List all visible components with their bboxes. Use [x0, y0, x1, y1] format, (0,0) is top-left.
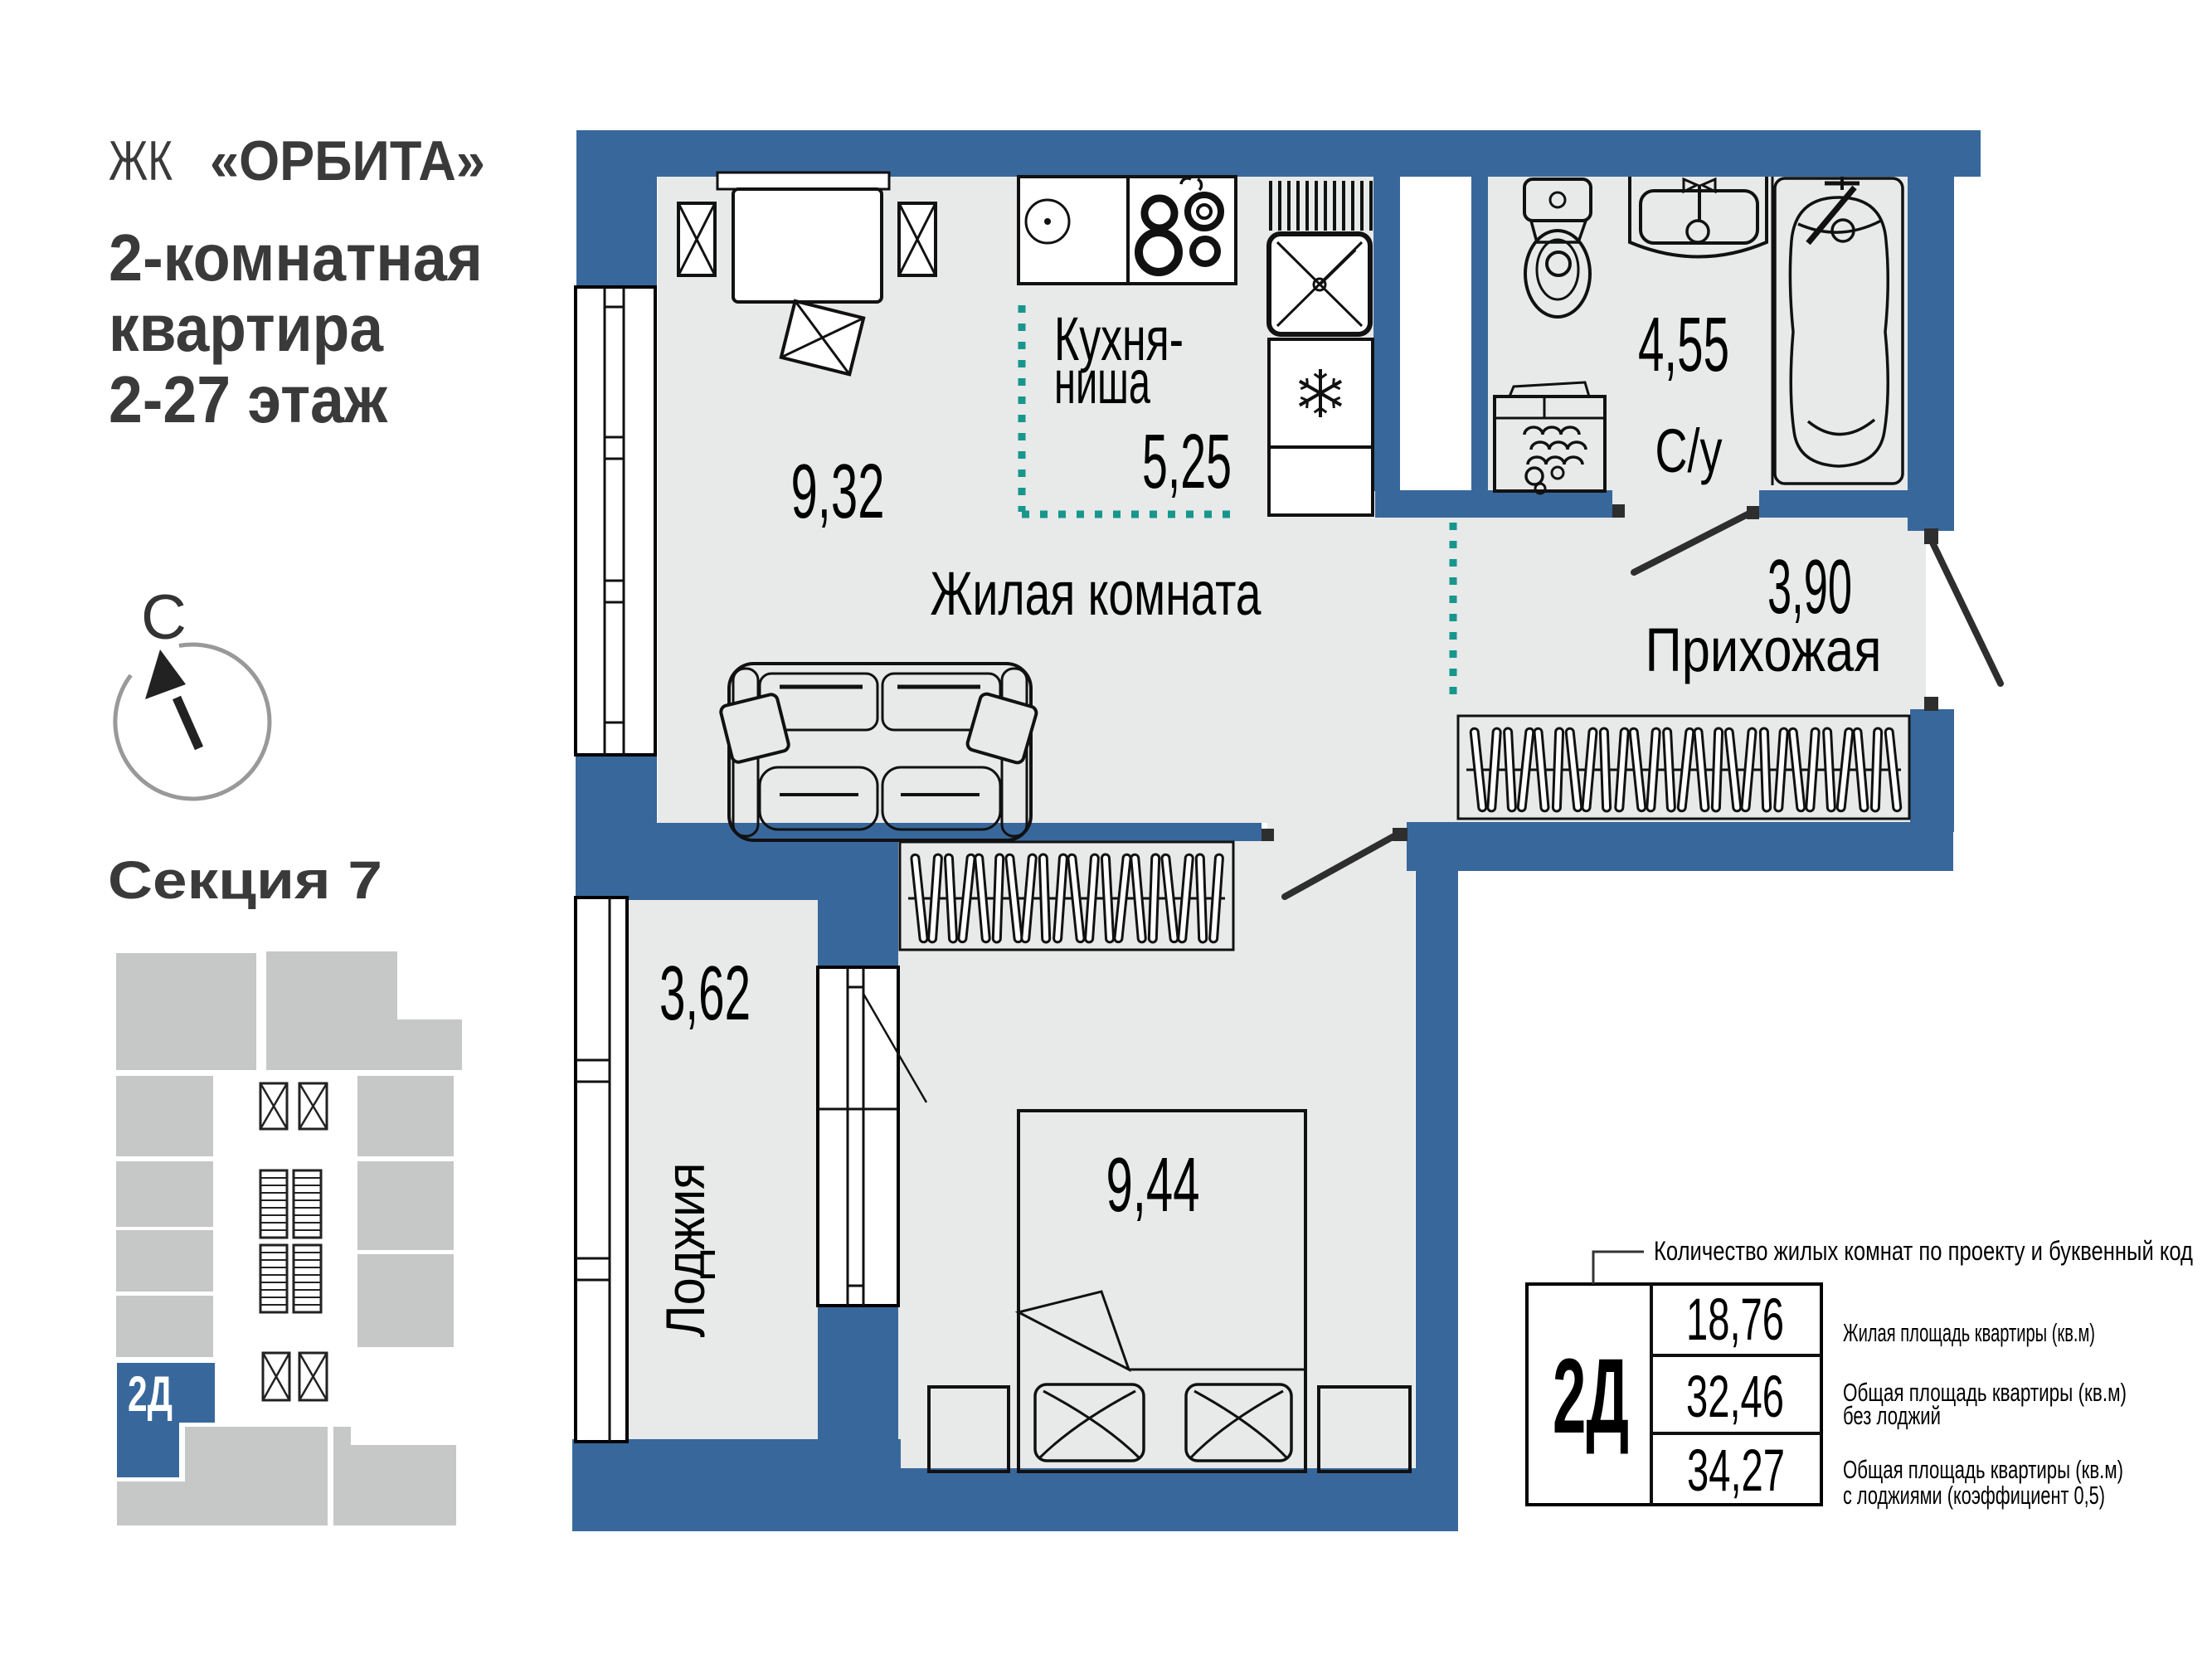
- svg-text:Жилая комната: Жилая комната: [931, 559, 1262, 628]
- svg-text:34,27: 34,27: [1687, 1438, 1785, 1504]
- svg-text:Лоджия: Лоджия: [654, 1163, 716, 1338]
- svg-text:2-27 этаж: 2-27 этаж: [109, 362, 388, 436]
- svg-text:ниша: ниша: [1054, 348, 1151, 416]
- svg-text:9,44: 9,44: [1106, 1141, 1200, 1228]
- svg-text:Общая площадь квартиры (кв.м): Общая площадь квартиры (кв.м): [1843, 1455, 2123, 1484]
- svg-text:С: С: [141, 582, 187, 653]
- svg-text:2Д: 2Д: [128, 1366, 173, 1422]
- svg-text:с лоджиями (коэффициент 0,5): с лоджиями (коэффициент 0,5): [1843, 1481, 2105, 1510]
- svg-text:Количество жилых комнат по про: Количество жилых комнат по проекту и бук…: [1654, 1236, 2193, 1266]
- svg-text:без лоджий: без лоджий: [1843, 1401, 1941, 1430]
- svg-text:9,32: 9,32: [791, 448, 885, 534]
- svg-text:5,25: 5,25: [1142, 418, 1232, 504]
- svg-text:18,76: 18,76: [1686, 1287, 1784, 1353]
- svg-text:ЖК: ЖК: [109, 129, 173, 192]
- svg-text:Прихожая: Прихожая: [1646, 615, 1882, 684]
- svg-text:«ОРБИТА»: «ОРБИТА»: [210, 129, 485, 192]
- svg-text:3,62: 3,62: [659, 950, 751, 1036]
- svg-text:32,46: 32,46: [1686, 1365, 1784, 1430]
- svg-text:С/у: С/у: [1655, 416, 1723, 485]
- svg-text:квартира: квартира: [109, 291, 383, 365]
- svg-text:2Д: 2Д: [1553, 1337, 1629, 1456]
- svg-text:Секция 7: Секция 7: [108, 850, 382, 910]
- svg-text:Жилая площадь квартиры (кв.м): Жилая площадь квартиры (кв.м): [1843, 1318, 2095, 1347]
- svg-text:2-комнатная: 2-комнатная: [109, 221, 483, 294]
- svg-text:4,55: 4,55: [1638, 301, 1729, 387]
